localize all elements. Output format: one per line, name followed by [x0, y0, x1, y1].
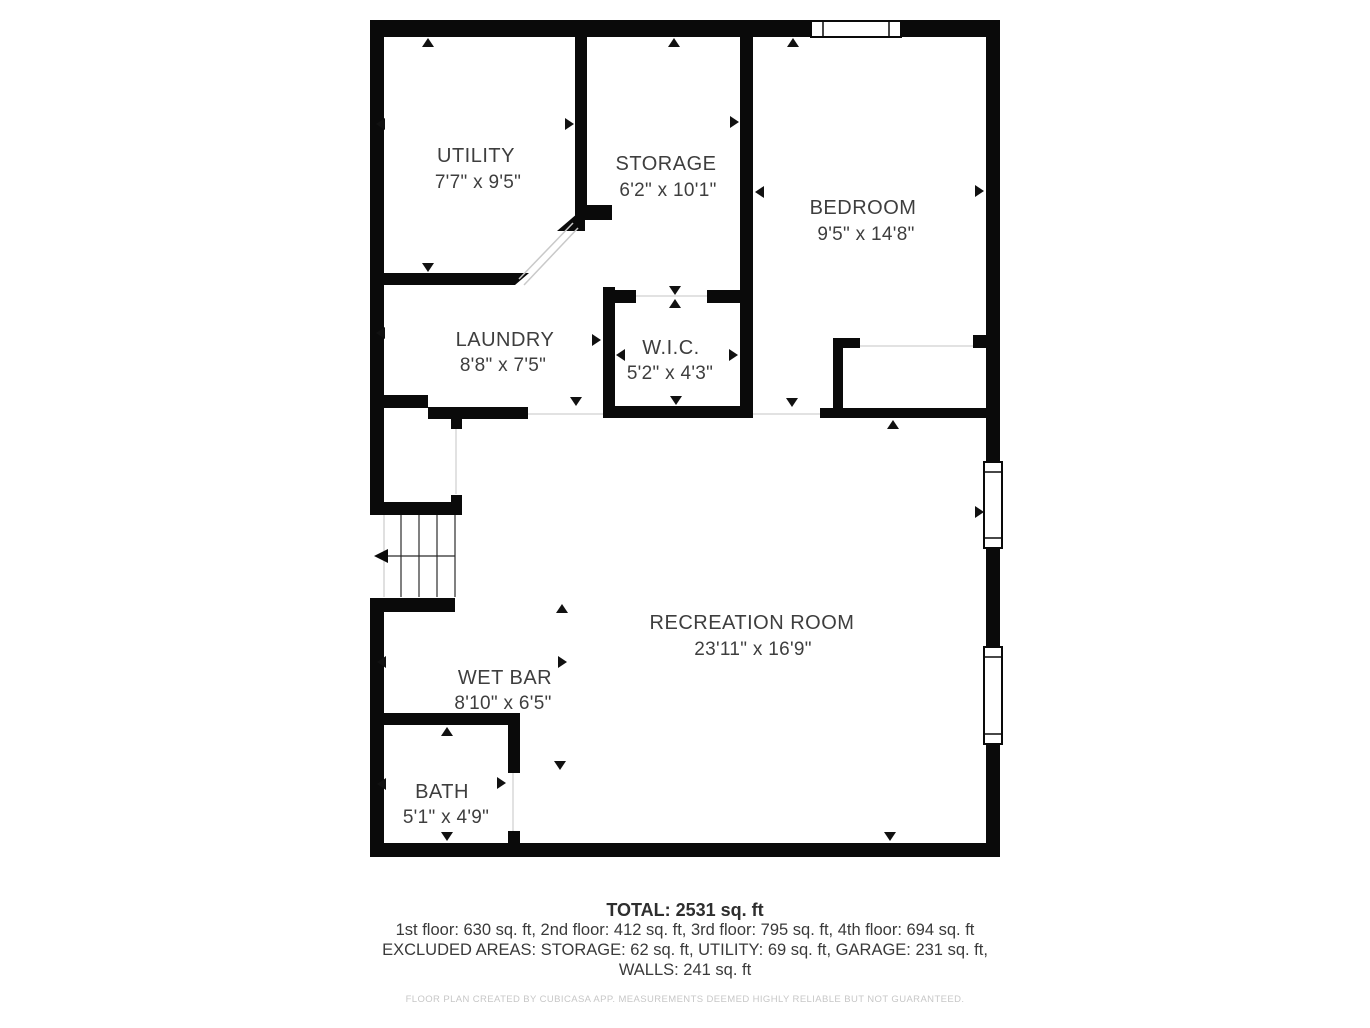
floor-areas-text: 1st floor: 630 sq. ft, 2nd floor: 412 sq… [0, 921, 1370, 941]
room-dims-storage: 6'2" x 10'1" [619, 180, 716, 201]
room-label-laundry: LAUNDRY [456, 329, 555, 351]
room-dims-utility: 7'7" x 9'5" [435, 172, 521, 193]
room-dims-bath: 5'1" x 4'9" [403, 807, 489, 828]
door-openings [456, 223, 973, 831]
room-label-bedroom: BEDROOM [810, 197, 917, 219]
measure-arrow-icon [787, 38, 799, 47]
room-label-wic: W.I.C. [642, 337, 699, 359]
measure-arrow-icon [554, 761, 566, 770]
wall-bedroom-bottom [820, 408, 1000, 418]
room-labels: UTILITY 7'7" x 9'5" STORAGE 6'2" x 10'1"… [403, 145, 917, 828]
measure-arrow-icon [497, 777, 506, 789]
wall-closet-stub-right [973, 335, 986, 348]
measure-arrow-icon [669, 286, 681, 295]
measure-arrow-icon [565, 118, 574, 130]
room-dims-laundry: 8'8" x 7'5" [460, 355, 546, 376]
measure-arrow-icon [884, 832, 896, 841]
wall-laundry-bottom-right [428, 407, 528, 419]
wall-utility-bottom [370, 273, 515, 285]
measure-arrow-icon [556, 604, 568, 613]
wall-laundry-bottom-left [384, 395, 428, 408]
measure-arrow-icon [441, 727, 453, 736]
measure-arrow-icon [975, 506, 984, 518]
wall-bath-right-upper [508, 713, 520, 773]
measure-arrow-icon [668, 38, 680, 47]
measure-arrow-icon [670, 396, 682, 405]
measure-arrow-icon [755, 186, 764, 198]
room-label-bath: BATH [415, 781, 469, 803]
window-right-upper-icon [984, 462, 1002, 548]
wall-landing-bottom [370, 502, 462, 515]
wall-wic-bottom [603, 406, 753, 418]
measure-arrow-icon [558, 656, 567, 668]
measure-arrow-icon [592, 334, 601, 346]
measure-arrow-icon [730, 116, 739, 128]
room-label-storage: STORAGE [616, 153, 717, 175]
measure-arrow-icon [616, 349, 625, 361]
wall-closet-stub-left [833, 338, 860, 348]
wall-outer-top [370, 20, 1000, 37]
room-label-wetbar: WET BAR [458, 667, 552, 689]
floorplan-drawing: UTILITY 7'7" x 9'5" STORAGE 6'2" x 10'1"… [0, 0, 1370, 1028]
wall-below-stairs [370, 598, 455, 612]
room-dims-wetbar: 8'10" x 6'5" [454, 693, 551, 714]
disclaimer-text: FLOOR PLAN CREATED BY CUBICASA APP. MEAS… [0, 994, 1370, 1005]
stairs-direction-arrow-icon [374, 549, 388, 563]
staircase [374, 515, 455, 597]
excluded-areas-text: EXCLUDED AREAS: STORAGE: 62 sq. ft, UTIL… [0, 941, 1370, 961]
measure-arrow-icon [422, 263, 434, 272]
room-dims-recreation: 23'11" x 16'9" [694, 639, 812, 660]
wall-bath-right-stub [508, 831, 520, 845]
room-label-utility: UTILITY [437, 145, 515, 167]
measure-arrow-icon [729, 349, 738, 361]
measure-arrow-icon [441, 832, 453, 841]
wall-outer-left-lower [370, 598, 384, 857]
floorplan-page: UTILITY 7'7" x 9'5" STORAGE 6'2" x 10'1"… [0, 0, 1370, 1028]
wall-closet-left [833, 338, 843, 408]
window-top-icon [811, 21, 901, 37]
wall-outer-left-upper [370, 20, 384, 515]
door-leaf-line-1 [519, 223, 573, 279]
measure-arrow-icon [975, 185, 984, 197]
wall-wic-top-right [707, 290, 740, 303]
total-area-text: TOTAL: 2531 sq. ft [0, 899, 1370, 921]
measure-arrow-icon [422, 38, 434, 47]
walls-area-text: WALLS: 241 sq. ft [0, 961, 1370, 981]
measure-arrow-icon [570, 397, 582, 406]
door-leaf-line-2 [524, 228, 578, 285]
wall-bath-top [370, 713, 520, 725]
room-dims-bedroom: 9'5" x 14'8" [817, 224, 914, 245]
window-right-lower-icon [984, 647, 1002, 744]
wall-wic-left [603, 287, 615, 418]
wall-storage-bedroom [740, 37, 753, 418]
wall-outer-bottom [370, 843, 1000, 857]
room-dims-wic: 5'2" x 4'3" [627, 363, 713, 384]
room-label-recreation: RECREATION ROOM [650, 612, 855, 634]
measure-arrow-icon [669, 299, 681, 308]
wall-utility-storage [575, 37, 587, 208]
wall-landing-stub-top [451, 419, 462, 429]
measure-arrow-icon [786, 398, 798, 407]
area-summary: TOTAL: 2531 sq. ft 1st floor: 630 sq. ft… [0, 899, 1370, 1005]
measure-arrow-icon [887, 420, 899, 429]
wall-angled-end [515, 273, 529, 285]
